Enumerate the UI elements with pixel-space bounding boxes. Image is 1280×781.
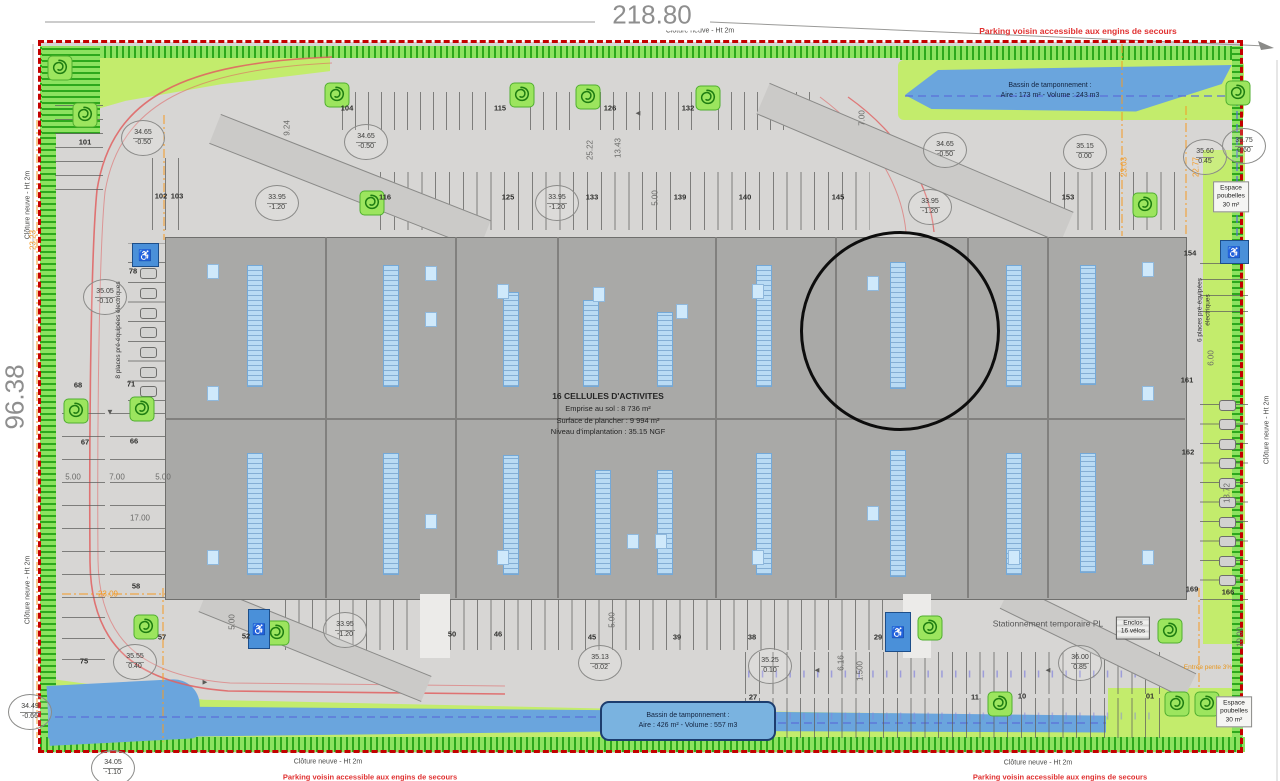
tree-icon [1133,193,1158,218]
fence-label: Clôture neuve - Ht 2m [1004,760,1072,767]
level-value: 35.60 [1196,148,1214,156]
skylight [1142,386,1154,401]
cell-strip [583,300,599,387]
skylight [752,284,764,299]
skylight [207,550,219,565]
level-value: 35.15 [1076,143,1094,151]
wheelchair-icon: ♿ [138,249,152,262]
parking-number: 58 [132,582,140,591]
dimension-label: 5.00 [608,612,617,628]
level-value: 35.13 [591,654,609,662]
dimension-label: 5.00 [65,473,81,482]
level-value: 35.25 [761,657,779,665]
skylight [425,514,437,529]
parking-number: 104 [341,104,354,113]
dimension-label: 10.00 [1236,627,1245,647]
car-icon [140,268,157,279]
level-value: 35.55 [126,653,144,661]
wheelchair-icon: ♿ [252,623,266,636]
tree-icon [130,397,155,422]
skylight [752,550,764,565]
car-icon [1219,575,1236,586]
cell-strip [657,470,673,575]
building-footprint: Emprise au sol : 8 736 m² [518,403,698,415]
parking-number: 67 [81,438,89,447]
direction-arrow: ► [201,678,209,687]
top-dimension-value: 218.80 [604,0,700,31]
car-icon [1219,458,1236,469]
car-icon [1219,556,1236,567]
level-marker: 35.750.60 [1222,128,1266,164]
car-icon [140,288,157,299]
parking-number: 01 [1146,692,1154,701]
parking-number: 66 [130,437,138,446]
parking-number: 46 [494,630,502,639]
level-value: -0.50 [935,150,955,159]
level-value: 34.05 [104,759,122,767]
handicap-spot: ♿ [1220,240,1249,264]
skylight [593,287,605,302]
parking-number: 139 [674,193,687,202]
parking-number: 39 [673,633,681,642]
fence-label: Clôture neuve - Ht 2m [1264,396,1271,464]
parking-number: 126 [604,104,617,113]
skylight [207,386,219,401]
skylight [207,264,219,279]
tree-icon [73,103,98,128]
level-value: 33.95 [336,621,354,629]
tree-icon [1165,692,1190,717]
basin-bottom-title: Bassin de tamponnement : [646,711,729,721]
cell-strip [383,265,399,387]
car-icon [1219,439,1236,450]
level-value: 34.65 [134,129,152,137]
level-value: -0.50 [356,142,376,151]
skylight [497,550,509,565]
tree-icon [696,86,721,111]
level-value: 0.10 [761,666,779,675]
parking-number: 38 [748,633,756,642]
parking-number: 75 [80,657,88,666]
parking-number: 102 [155,192,168,201]
skylight [425,266,437,281]
car-icon [140,327,157,338]
parking-number: 71 [127,380,135,389]
skylight [627,534,639,549]
fence-label: Clôture neuve - Ht 2m [294,759,362,766]
dimension-label: 23.03 [1120,157,1129,177]
parking-number: 29 [874,633,882,642]
cell-strip [383,453,399,575]
skylight [676,304,688,319]
dimension-label: 5.00 [228,614,237,630]
dimension-label: 6.00 [1207,350,1216,366]
basin-top-values: Aire : 173 m² - Volume : 243 m3 [1001,91,1100,101]
temporary-truck-parking-label: Stationnement temporaire PL [993,618,1104,629]
neighbor-parking-note: Parking voisin accessible aux engins de … [283,773,457,781]
parking-number: 57 [158,633,166,642]
highlight-circle [800,231,1000,431]
level-marker: 34.65-0.50 [344,124,388,160]
level-marker: 34.05-1.10 [91,750,135,781]
dimension-label: 6.16 [837,655,846,671]
level-value: 0.85 [1071,663,1089,672]
basin-top-title: Bassin de tamponnement : [1001,81,1100,91]
dimension-label: 9.24 [283,120,292,136]
level-value: 0.40 [126,662,144,671]
cell-strip [657,312,673,387]
direction-arrow: ◄ [1044,666,1052,675]
level-value: -0.10 [95,297,115,306]
level-marker: 35.150.00 [1063,134,1107,170]
parking-number: 11 [971,693,979,702]
tree-icon [64,399,89,424]
parking-number: 145 [832,193,845,202]
cell-strip [247,265,263,387]
cell-strip [1006,265,1022,387]
tree-icon [1226,81,1251,106]
cell-strip [1080,453,1096,573]
direction-arrow: ◄ [634,109,642,118]
neighbor-parking-note: Parking voisin accessible aux engins de … [973,773,1147,781]
parking-number: 140 [739,193,752,202]
tree-icon [48,56,73,81]
basin-bottom-label: Bassin de tamponnement : Aire : 426 m² -… [600,701,776,741]
skylight [655,534,667,549]
parking-number: 50 [448,630,456,639]
handicap-spot: ♿ [885,612,911,652]
drive-aisle [420,594,450,658]
skylight [1142,262,1154,277]
building-info: 16 CELLULES D'ACTIVITES Emprise au sol :… [518,390,698,438]
parking-number: 68 [74,381,82,390]
direction-arrow: ◄ [813,666,821,675]
level-marker: 33.95-1.20 [255,185,299,221]
level-value: 34.49 [21,703,39,711]
parking-number: 101 [79,138,92,147]
level-marker: 36.000.85 [1058,645,1102,681]
level-value: 34.65 [936,141,954,149]
level-value: -0.66 [20,712,40,721]
car-icon [1219,536,1236,547]
level-marker: 33.95-1.20 [535,185,579,221]
dimension-label: 1.500 [856,661,865,681]
car-icon [1219,517,1236,528]
level-marker: 35.600.45 [1183,139,1227,175]
parking-number: 52 [242,632,250,641]
parking-number: 169 [1186,585,1199,594]
car-icon [140,308,157,319]
parking-number: 125 [502,193,515,202]
handicap-spot: ♿ [132,243,159,267]
dimension-label: 7.00 [858,110,867,126]
level-marker: 34.65-0.50 [121,120,165,156]
building-title: 16 CELLULES D'ACTIVITES [518,390,698,403]
level-marker: 34.49-0.66 [8,694,52,730]
level-value: 36.00 [1071,654,1089,662]
cell-strip [503,292,519,387]
dimension-label: 13.72 [1223,483,1232,503]
cell-strip [890,450,906,577]
level-value: 0.60 [1235,146,1253,155]
tree-icon [134,615,159,640]
parking-number: 162 [1182,448,1195,457]
level-value: 33.95 [268,194,286,202]
cell-strip [1080,265,1096,385]
car-icon [140,347,157,358]
wheelchair-icon: ♿ [891,626,905,639]
level-value: 0.00 [1076,152,1094,161]
parking-number: 103 [171,192,184,201]
dimension-label: 22.77 [1192,157,1201,177]
parking-number: 161 [1181,376,1194,385]
car-icon [1219,419,1236,430]
parking-number: 154 [1184,249,1197,258]
parking-number: 132 [682,104,695,113]
level-marker: 34.65-0.50 [923,132,967,168]
parking-number: 45 [588,633,596,642]
car-icon [1219,400,1236,411]
entrance-slope-label: Entrée pente 3% [1184,664,1232,672]
skylight [867,506,879,521]
skylight [1142,550,1154,565]
level-value: -1.20 [920,207,940,216]
basin-top-label: Bassin de tamponnement : Aire : 173 m² -… [1001,81,1100,101]
parking-number: 153 [1062,193,1075,202]
level-marker: 33.95-1.20 [323,612,367,648]
level-value: -1.20 [267,203,287,212]
dimension-label: 23.09 [98,590,118,599]
fence-label: Clôture neuve - Ht 2m [25,556,32,624]
neighbor-parking-note: Parking voisin accessible aux engins de … [979,26,1176,36]
parking-number: 166 [1222,588,1235,597]
dimension-label: 7.00 [109,473,125,482]
dimension-label: 17.00 [130,514,150,523]
parking-number: 115 [494,104,506,113]
fence-label: Clôture neuve - Ht 2m [25,171,32,239]
site-plan: 218.80 96.38 Parking voisin accessible a… [0,0,1280,781]
level-value: 34.65 [357,133,375,141]
tree-icon [1158,619,1183,644]
direction-arrow: ▼ [106,408,114,417]
cell-strip [595,470,611,575]
dimension-label: 5.00 [651,190,660,206]
ev-spaces-label: 8 places pré-équipées électriques [115,281,123,378]
parking-number: 133 [586,193,599,202]
car-icon [140,367,157,378]
waste-area-label: Espace poubelles 30 m² [1216,696,1252,727]
parking-number: 116 [379,193,391,202]
level-value: -1.10 [103,768,123,777]
left-dimension-value: 96.38 [0,356,31,437]
dimension-label: 13.43 [614,138,623,158]
skylight [425,312,437,327]
skylight [497,284,509,299]
level-value: -0.02 [590,663,610,672]
level-marker: 33.95-1.20 [908,189,952,225]
arrowhead [1258,41,1274,50]
level-value: -1.20 [335,630,355,639]
level-marker: 35.550.40 [113,644,157,680]
level-value: -1.20 [547,203,567,212]
tree-icon [918,616,943,641]
ev-spaces-label: 6 places pré-équipées électriques [1197,273,1214,348]
waste-area-label: Espace poubelles 30 m² [1213,181,1249,212]
level-marker: 35.250.10 [748,648,792,684]
bike-enclosure-label: Enclos 16 vélos [1116,617,1150,640]
tree-icon [988,692,1013,717]
parking-number: 10 [1018,692,1026,701]
skylight [1008,550,1020,565]
level-value: 35.75 [1235,137,1253,145]
handicap-spot: ♿ [248,609,270,649]
basin-bottom-values: Aire : 426 m² - Volume : 557 m3 [639,721,738,731]
building-level: Niveau d'implantation : 35.15 NGF [518,426,698,438]
level-value: 35.05 [96,288,114,296]
tree-icon [576,85,601,110]
tree-icon [510,83,535,108]
parking-number: 78 [129,267,137,276]
dimension-label: 25.22 [586,140,595,160]
building-floor-area: Surface de plancher : 9 994 m² [518,415,698,427]
dimension-label: 5.00 [155,473,171,482]
level-value: 33.95 [921,198,939,206]
level-value: 33.95 [548,194,566,202]
level-value: -0.50 [133,138,153,147]
level-marker: 35.13-0.02 [578,645,622,681]
wheelchair-icon: ♿ [1227,246,1241,259]
cell-strip [247,453,263,575]
